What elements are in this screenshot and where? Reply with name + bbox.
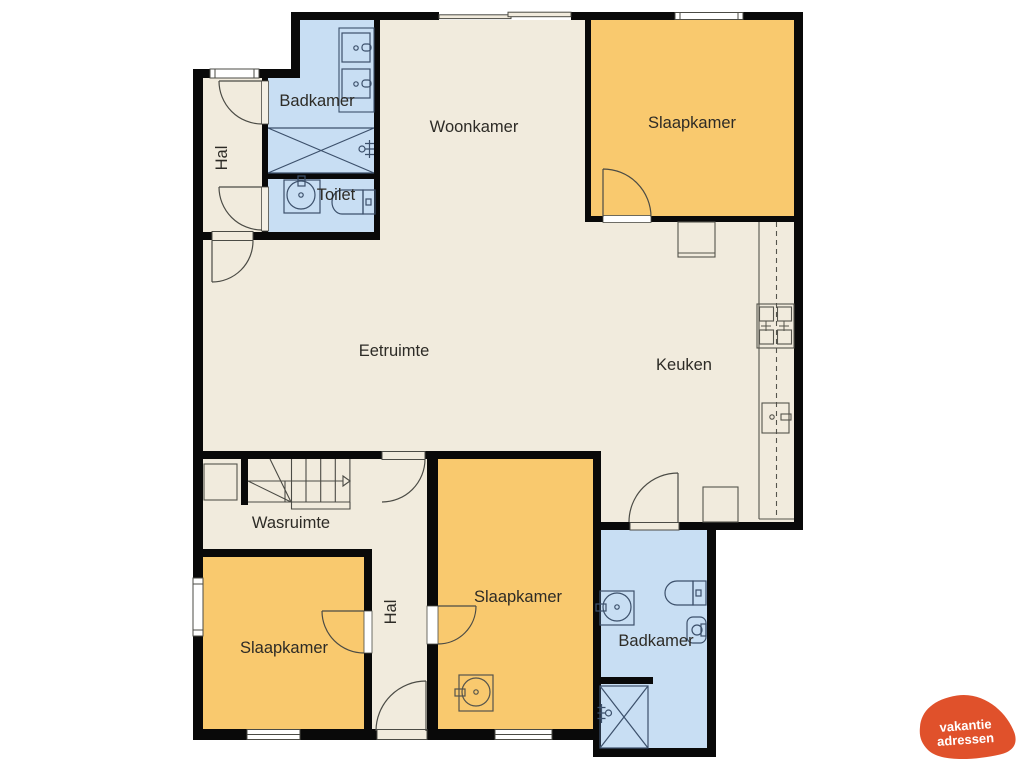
svg-text:Slaapkamer: Slaapkamer bbox=[648, 114, 737, 132]
svg-text:Hal: Hal bbox=[382, 600, 400, 625]
svg-text:Toilet: Toilet bbox=[317, 186, 356, 204]
svg-text:Badkamer: Badkamer bbox=[279, 92, 355, 110]
svg-text:Slaapkamer: Slaapkamer bbox=[474, 588, 563, 606]
svg-text:Hal: Hal bbox=[213, 146, 231, 171]
svg-text:Slaapkamer: Slaapkamer bbox=[240, 639, 329, 657]
svg-text:Wasruimte: Wasruimte bbox=[252, 514, 330, 532]
svg-text:Keuken: Keuken bbox=[656, 356, 712, 374]
svg-text:Badkamer: Badkamer bbox=[618, 632, 694, 650]
svg-text:Eetruimte: Eetruimte bbox=[359, 342, 430, 360]
svg-text:Woonkamer: Woonkamer bbox=[430, 118, 519, 136]
